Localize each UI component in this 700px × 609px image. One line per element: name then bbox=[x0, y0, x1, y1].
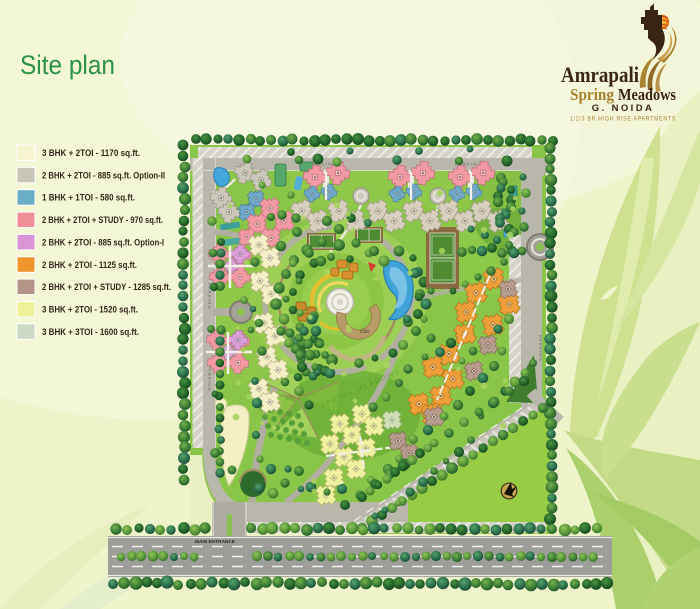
svg-text:MAIN ENTRANCE: MAIN ENTRANCE bbox=[195, 539, 236, 545]
svg-text:Amrapali: Amrapali bbox=[561, 62, 639, 87]
svg-text:Meadows: Meadows bbox=[618, 85, 676, 104]
svg-text:2 BHK + 2TOI - 1125 sq.ft.: 2 BHK + 2TOI - 1125 sq.ft. bbox=[42, 260, 137, 270]
svg-text:1/2/3 BR HIGH RISE APARTMENTS: 1/2/3 BR HIGH RISE APARTMENTS bbox=[570, 117, 676, 123]
svg-text:G. NOIDA: G. NOIDA bbox=[592, 103, 654, 114]
svg-text:PARKING: PARKING bbox=[538, 335, 543, 362]
svg-text:Spring: Spring bbox=[570, 85, 615, 104]
svg-text:club: club bbox=[360, 329, 369, 335]
svg-text:Site plan: Site plan bbox=[20, 50, 115, 80]
svg-text:3 BHK + 3TOI - 1600 sq.ft.: 3 BHK + 3TOI - 1600 sq.ft. bbox=[42, 327, 139, 337]
svg-text:2 BHK + 2TOI - 885 sq.ft. Opti: 2 BHK + 2TOI - 885 sq.ft. Option-II bbox=[42, 170, 165, 180]
svg-text:2 BHK + 2TOI + STUDY - 1285 sq: 2 BHK + 2TOI + STUDY - 1285 sq.ft. bbox=[42, 282, 171, 292]
svg-text:1 BHK + 1TOI - 580 sq.ft.: 1 BHK + 1TOI - 580 sq.ft. bbox=[42, 193, 135, 203]
svg-text:3 BHK + 2TOI - 1520 sq.ft.: 3 BHK + 2TOI - 1520 sq.ft. bbox=[42, 305, 138, 315]
svg-text:2 BHK + 2TOI + STUDY - 970 sq.: 2 BHK + 2TOI + STUDY - 970 sq.ft. bbox=[42, 215, 163, 225]
svg-text:2 BHK + 2TOI - 885 sq.ft. Opti: 2 BHK + 2TOI - 885 sq.ft. Option-I bbox=[42, 237, 164, 247]
svg-text:3 BHK + 2TOI - 1170 sq.ft.: 3 BHK + 2TOI - 1170 sq.ft. bbox=[42, 148, 140, 158]
